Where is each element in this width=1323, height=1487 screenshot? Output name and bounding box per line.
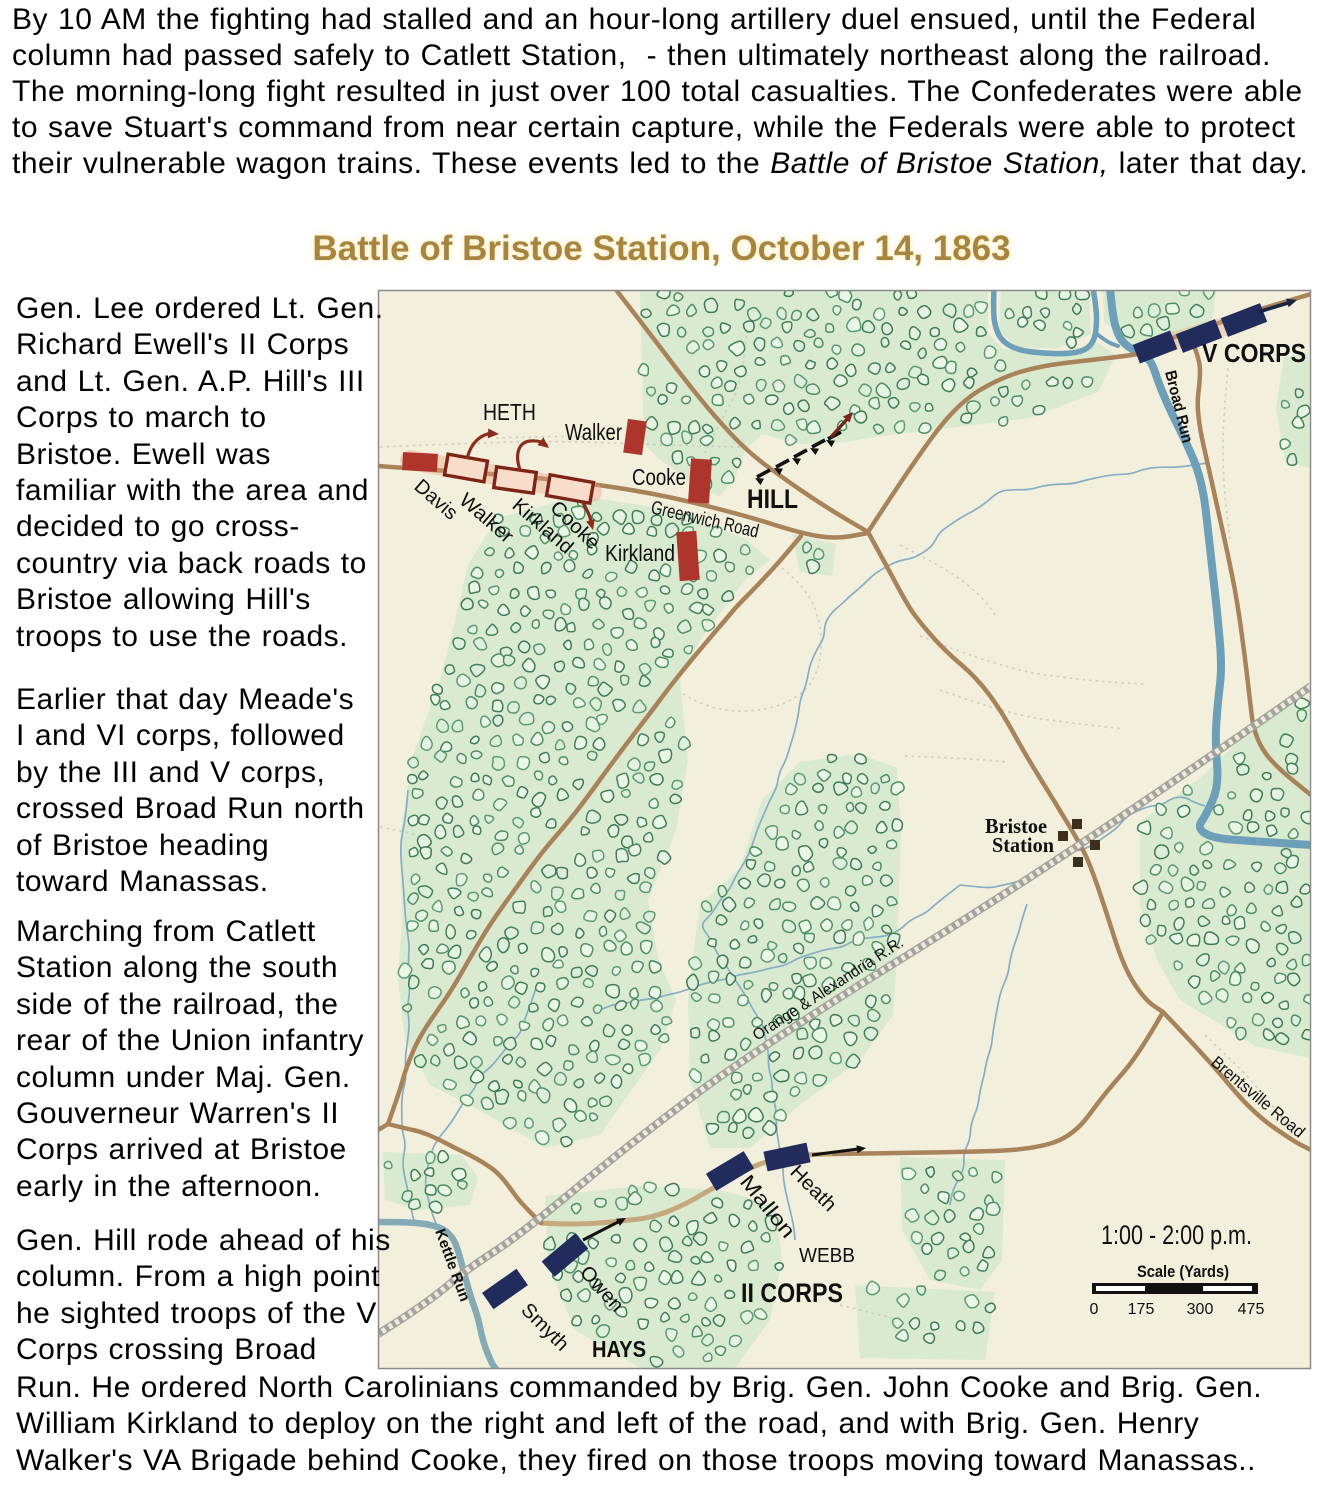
svg-text:Scale (Yards): Scale (Yards) — [1137, 1262, 1229, 1281]
svg-text:HETH: HETH — [483, 399, 536, 425]
svg-text:V CORPS: V CORPS — [1202, 338, 1306, 368]
svg-text:175: 175 — [1128, 1301, 1155, 1318]
svg-text:1:00 - 2:00 p.m.: 1:00 - 2:00 p.m. — [1101, 1220, 1252, 1250]
svg-text:300: 300 — [1187, 1301, 1214, 1318]
svg-text:WEBB: WEBB — [799, 1245, 855, 1267]
svg-text:Walker: Walker — [565, 419, 622, 445]
svg-text:475: 475 — [1238, 1301, 1265, 1318]
svg-text:Station: Station — [992, 833, 1054, 857]
svg-text:HAYS: HAYS — [592, 1336, 646, 1362]
svg-text:0: 0 — [1090, 1301, 1099, 1318]
svg-text:Kirkland: Kirkland — [605, 540, 675, 566]
svg-text:II CORPS: II CORPS — [741, 1278, 843, 1308]
svg-text:Cooke: Cooke — [632, 464, 686, 490]
svg-text:HILL: HILL — [747, 484, 798, 514]
